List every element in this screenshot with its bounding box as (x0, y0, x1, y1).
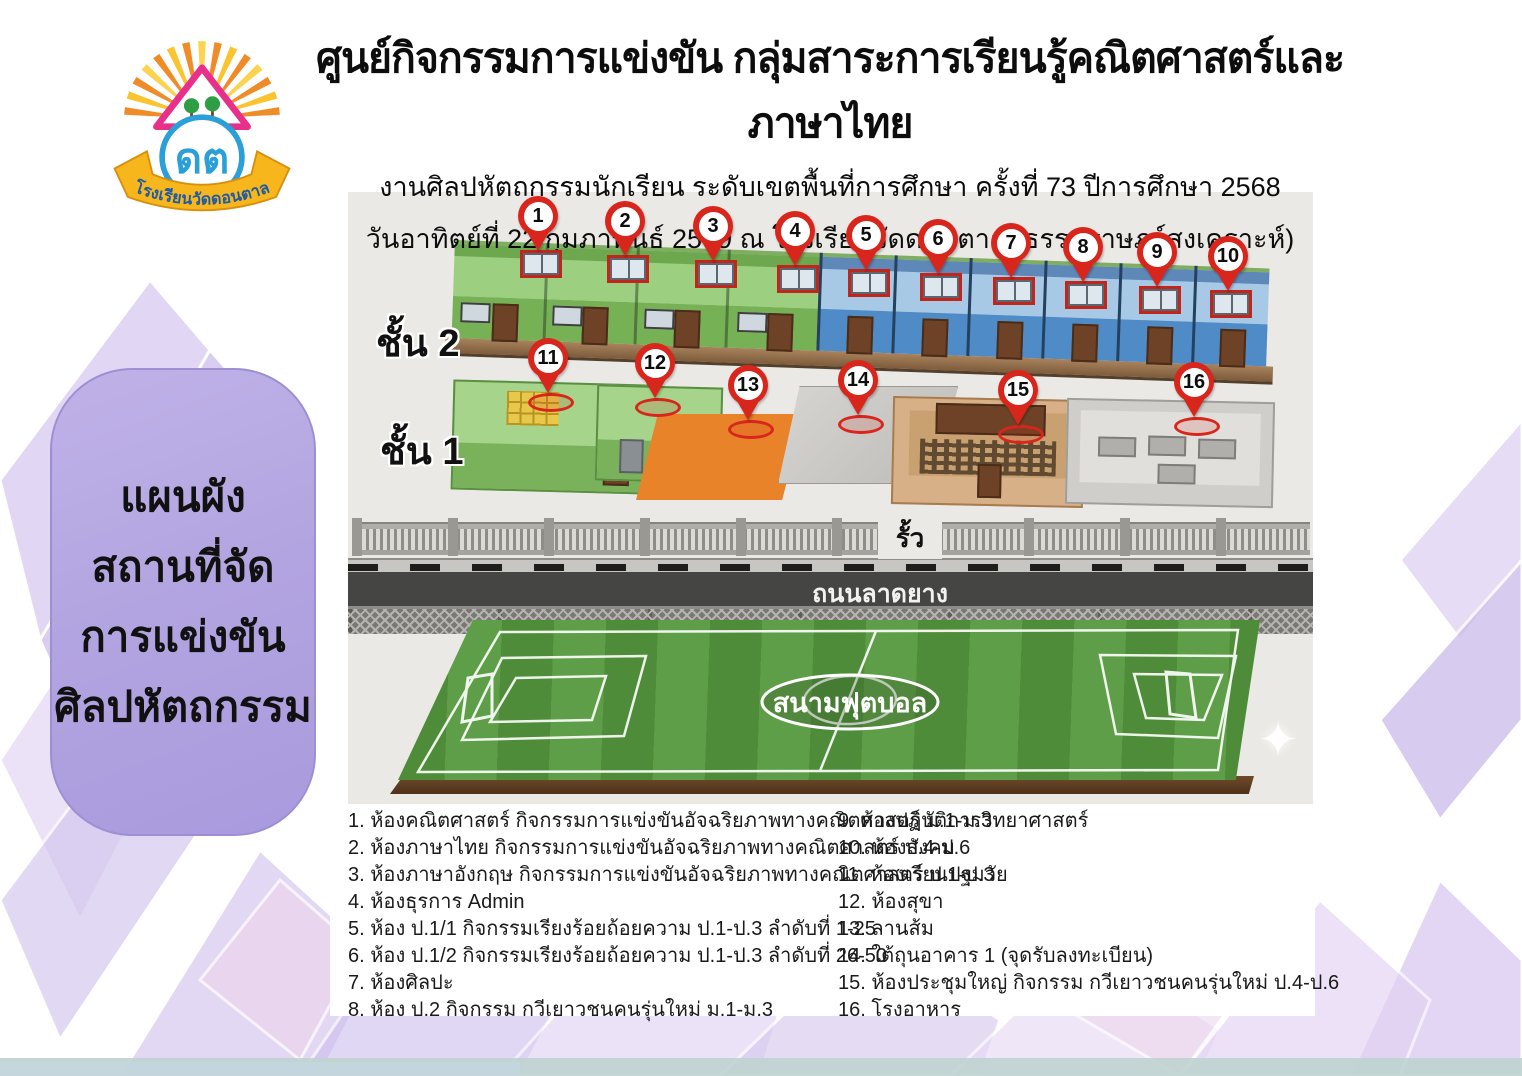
map-pin-8: 8 (1063, 227, 1103, 285)
legend-item: 14. ใต้ถุนอาคาร 1 (จุดรับลงทะเบียน) (838, 943, 1313, 970)
map-pin-5: 5 (846, 215, 886, 273)
sparkle-icon: ✦ (1258, 712, 1298, 768)
road-label: ถนนลาดยาง (700, 574, 1060, 614)
map-pin-7: 7 (991, 223, 1031, 281)
legend-item: 12. ห้องสุขา (838, 889, 1313, 916)
map-pin-12: 12 (635, 343, 675, 401)
legend-item: 8. ห้อง ป.2 กิจกรรม กวีเยาวชนคนรุ่นใหม่ … (348, 997, 838, 1024)
map-pin-6: 6 (918, 219, 958, 277)
legend-item: 5. ห้อง ป.1/1 กิจกรรมเรียงร้อยถ้อยความ ป… (348, 916, 838, 943)
map-pin-15: 15 (998, 370, 1038, 428)
map-pin-9: 9 (1137, 232, 1177, 290)
cafeteria (1065, 398, 1275, 508)
map-pin-2: 2 (605, 201, 645, 259)
football-field: สนามฟุตบอล (398, 620, 1260, 780)
map-caption-bubble: แผนผัง สถานที่จัด การแข่งขัน ศิลปหัตถกรร… (50, 368, 316, 836)
subtitle-event: งานศิลปหัตถกรรมนักเรียน ระดับเขตพื้นที่ก… (270, 165, 1390, 208)
map-pin-11: 11 (528, 338, 568, 396)
legend-item: 16. โรงอาหาร (838, 997, 1313, 1024)
floor1-label: ชั้น 1 (380, 420, 463, 481)
page-title: ศูนย์กิจกรรมการแข่งขัน กลุ่มสาระการเรียน… (270, 26, 1390, 156)
legend-item: 7. ห้องศิลปะ (348, 970, 838, 997)
caption-line: สถานที่จัด (92, 532, 275, 602)
caption-line: แผนผัง (120, 462, 246, 532)
legend-item: 15. ห้องประชุมใหญ่ กิจกรรม กวีเยาวชนคนรุ… (838, 970, 1313, 997)
caption-line: ศิลปหัตถกรรม (54, 672, 312, 742)
map-pin-3: 3 (693, 206, 733, 264)
field-markings: สนามฟุตบอล (398, 620, 1260, 780)
caption-line: การแข่งขัน (80, 602, 285, 672)
map-pin-13: 13 (728, 365, 768, 423)
legend-item: 10. ห้องสังคม (838, 835, 1313, 862)
floor2-label: ชั้น 2 (376, 312, 459, 373)
map-pin-1: 1 (518, 196, 558, 254)
header: ศูนย์กิจกรรมการแข่งขัน กลุ่มสาระการเรียน… (270, 26, 1390, 260)
map-pin-14: 14 (838, 360, 878, 418)
field-label: สนามฟุตบอล (773, 688, 927, 720)
emblem-letters: ดต (175, 134, 229, 181)
map-pin-4: 4 (775, 211, 815, 269)
legend-item: 13. ลานส้ม (838, 916, 1313, 943)
legend-item: 9. ห้องปฏิบัติการวิทยาศาสตร์ (838, 808, 1313, 835)
legend-item: 11. ห้องเรียนปฐมวัย (838, 862, 1313, 889)
assembly-hall (891, 396, 1085, 508)
legend-item: 4. ห้องธุรการ Admin (348, 889, 838, 916)
front-fence (352, 518, 1310, 558)
legend-item: 1. ห้องคณิตศาสตร์ กิจกรรมการแข่งขันอัจฉร… (348, 808, 838, 835)
fence-label: รั้ว (878, 518, 942, 559)
legend-item: 2. ห้องภาษาไทย กิจกรรมการแข่งขันอัจฉริยภ… (348, 835, 838, 862)
legend-column-left: 1. ห้องคณิตศาสตร์ กิจกรรมการแข่งขันอัจฉร… (348, 808, 838, 1024)
map-pin-10: 10 (1208, 236, 1248, 294)
legend-column-right: 9. ห้องปฏิบัติการวิทยาศาสตร์ 10. ห้องสัง… (838, 808, 1313, 1024)
map-pin-16: 16 (1174, 362, 1214, 420)
orange-terrace (636, 414, 804, 500)
legend-item: 3. ห้องภาษาอังกฤษ กิจกรรมการแข่งขันอัจฉร… (348, 862, 838, 889)
legend-item: 6. ห้อง ป.1/2 กิจกรรมเรียงร้อยถ้อยความ ป… (348, 943, 838, 970)
